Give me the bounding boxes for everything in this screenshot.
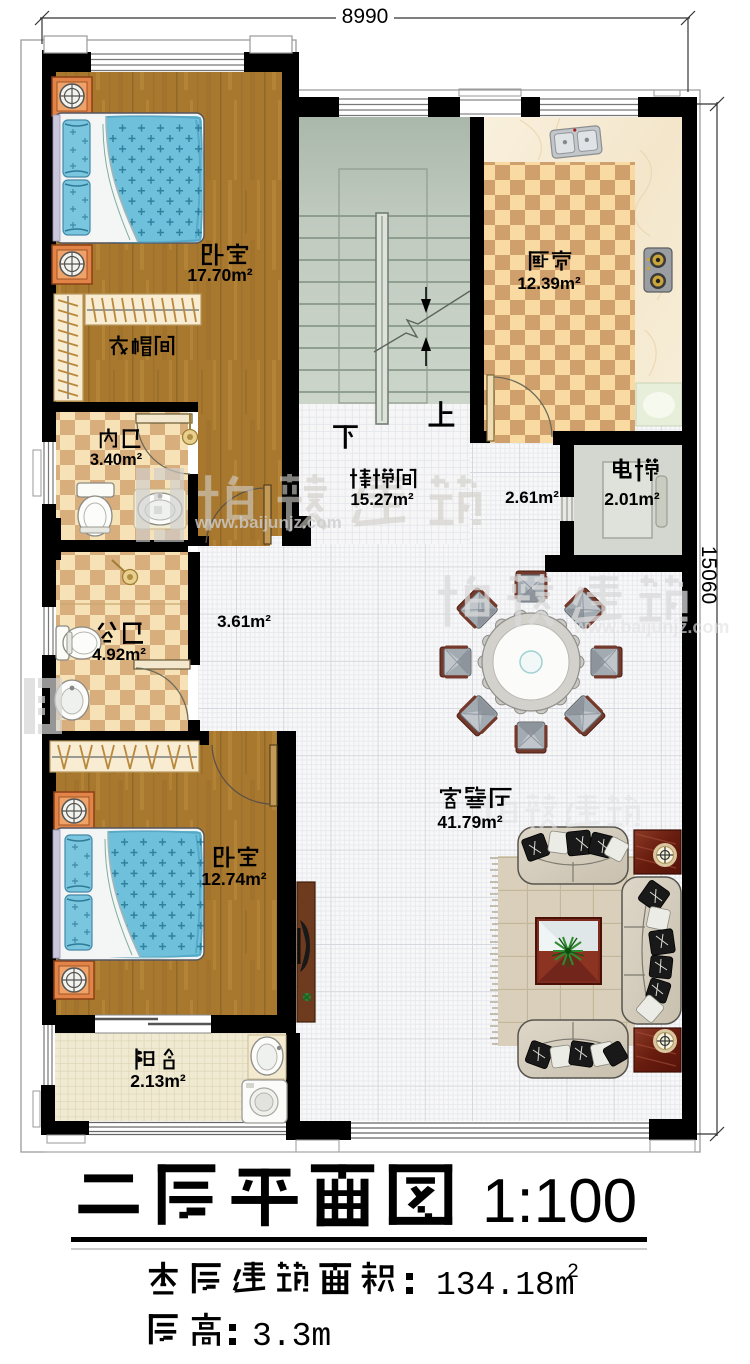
svg-text:2.13m²: 2.13m²	[130, 1071, 186, 1091]
svg-text:8990: 8990	[342, 5, 389, 28]
svg-text:3.61m²: 3.61m²	[217, 612, 271, 631]
svg-text:17.70m²: 17.70m²	[187, 265, 252, 285]
svg-text:12.39m²: 12.39m²	[517, 274, 581, 293]
svg-text:12.74m²: 12.74m²	[201, 869, 266, 889]
svg-text:www.baijunjz.com: www.baijunjz.com	[573, 617, 729, 637]
svg-text:15.27m²: 15.27m²	[350, 490, 414, 509]
svg-text:15060: 15060	[697, 546, 720, 604]
svg-text:3.3m: 3.3m	[252, 1318, 331, 1355]
svg-text:3.40m²: 3.40m²	[90, 451, 143, 469]
svg-text:www.baijunjz.com: www.baijunjz.com	[194, 513, 342, 532]
svg-text:1:100: 1:100	[482, 1167, 637, 1236]
svg-text:2.01m²: 2.01m²	[604, 489, 660, 509]
svg-text:4.92m²: 4.92m²	[92, 645, 146, 664]
svg-text:41.79m²: 41.79m²	[437, 812, 502, 832]
svg-text:134.18m: 134.18m	[436, 1267, 575, 1304]
svg-text:2.61m²: 2.61m²	[505, 488, 559, 507]
svg-text:2: 2	[567, 1261, 579, 1284]
